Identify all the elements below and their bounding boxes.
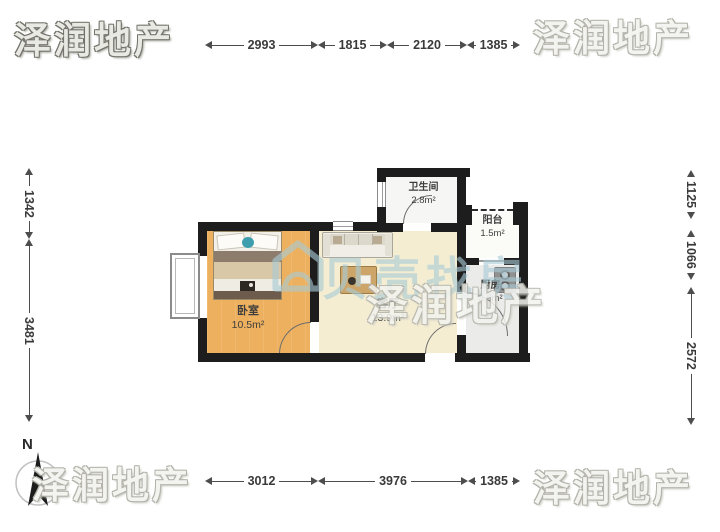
dim-top-4: 1385 (467, 37, 520, 53)
dim-left-1: 1342 (21, 168, 37, 239)
wall (198, 353, 425, 362)
balcony-open-edge (472, 209, 513, 211)
dim-value: 1385 (476, 473, 512, 489)
room-name: 卧室 (213, 305, 283, 319)
brand-watermark-center: 泽润地产 (366, 272, 546, 333)
dim-value: 1385 (476, 37, 512, 53)
dim-value: 1815 (335, 37, 371, 53)
dim-value: 2993 (244, 37, 280, 53)
wall (198, 222, 207, 256)
room-name: 阳台 (466, 215, 519, 228)
dim-bottom-1: 3012 (205, 473, 318, 489)
room-name: 卫生间 (386, 182, 461, 195)
brand-watermark-top-left: 泽润地产 (14, 10, 174, 64)
brand-watermark-bottom-right: 泽润地产 (533, 458, 693, 512)
dim-value: 3976 (375, 473, 411, 489)
dim-right-3: 2572 (683, 287, 699, 425)
window (377, 182, 386, 207)
floorplan-page: 泽润地产 泽润地产 泽润地产 泽润地产 泽润地产 贝壳找房 2993 1815 … (0, 0, 720, 532)
wall (455, 353, 530, 362)
dim-value: 2120 (409, 37, 445, 53)
room-label-balcony: 阳台 1.5m² (466, 215, 519, 239)
dim-bottom-3: 1385 (468, 473, 520, 489)
room-area: 1.5m² (466, 228, 519, 240)
dim-top-3: 2120 (387, 37, 467, 53)
wall (377, 223, 403, 232)
brand-watermark-top-right: 泽润地产 (533, 8, 693, 62)
room-area: 2.8m² (386, 195, 461, 207)
dim-value: 1066 (684, 237, 698, 273)
dim-value: 1125 (684, 177, 698, 212)
beike-house-logo-icon (272, 240, 324, 292)
wall (457, 335, 466, 353)
dim-value: 1342 (22, 186, 36, 222)
bay-window (170, 253, 200, 319)
room-area: 10.5m² (213, 319, 283, 332)
brand-watermark-bottom-left: 泽润地产 (32, 455, 192, 509)
room-label-bathroom: 卫生间 2.8m² (386, 182, 461, 206)
room-label-bedroom: 卧室 10.5m² (213, 305, 283, 332)
dim-value: 2572 (684, 338, 698, 374)
dim-left-2: 3481 (21, 239, 37, 422)
dim-value: 3481 (22, 313, 36, 349)
dim-top-1: 2993 (205, 37, 318, 53)
dim-value: 3012 (244, 473, 280, 489)
dim-bottom-2: 3976 (318, 473, 468, 489)
dim-right-2: 1066 (683, 230, 699, 287)
window (333, 221, 353, 231)
wall (377, 168, 386, 182)
dim-top-2: 1815 (318, 37, 387, 53)
dim-right-1: 1125 (683, 170, 699, 230)
